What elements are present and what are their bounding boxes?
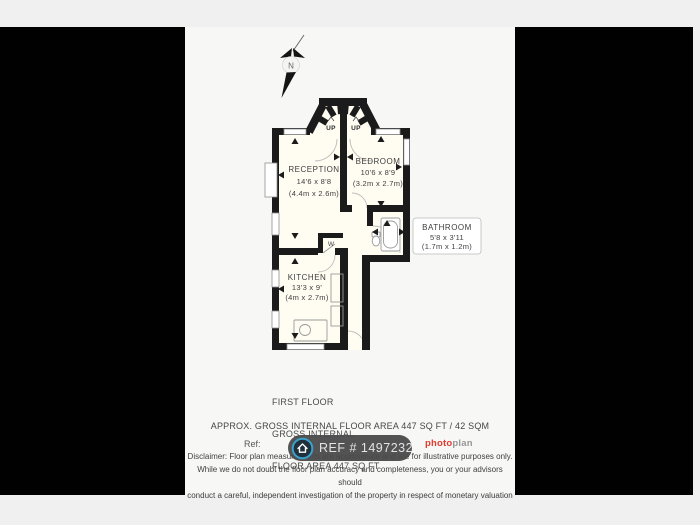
room-dim-imperial: 10'6 x 8'9 (361, 168, 396, 177)
room-dim-imperial: 13'3 x 9' (292, 283, 322, 292)
ref-label: Ref: (244, 439, 261, 449)
room-dim-imperial: 14'6 x 8'8 (297, 177, 332, 186)
approx-area-line: APPROX. GROSS INTERNAL FLOOR AREA 447 SQ… (185, 421, 515, 431)
room-name: KITCHEN (288, 273, 327, 282)
logo-part-plan: plan (452, 438, 472, 449)
screenshot-root: N (0, 0, 700, 525)
house-icon (291, 437, 314, 460)
floorplan-drawing: N (185, 27, 515, 372)
room-name: BEDROOM (356, 157, 401, 166)
bath-icon (381, 218, 400, 251)
floor-summary-line: FIRST FLOOR (272, 397, 380, 408)
room-dim-metric: (4.4m x 2.6m) (289, 189, 339, 198)
disclaimer-line: conduct a careful, independent investiga… (185, 489, 515, 502)
logo-part-photo: photo (425, 438, 452, 449)
left-letterbox (0, 27, 185, 495)
wardrobe-label: W (328, 241, 335, 248)
floorplan-image: N (185, 27, 515, 495)
room-dim-metric: (4m x 2.7m) (285, 293, 329, 302)
compass-icon: N (280, 35, 305, 98)
up-label: UP (326, 125, 336, 132)
room-name: RECEPTION (288, 165, 339, 174)
room-dim-metric: (3.2m x 2.7m) (353, 179, 403, 188)
photoplan-logo: photoplan (425, 438, 473, 449)
room-dim-metric: (1.7m x 1.2m) (422, 242, 472, 251)
right-letterbox (515, 27, 693, 495)
ref-badge-text: REF # 1497232 (319, 441, 413, 455)
up-label: UP (351, 125, 361, 132)
north-label: N (288, 62, 294, 71)
room-name: BATHROOM (422, 223, 472, 232)
ref-badge: REF # 1497232 (288, 435, 412, 461)
disclaimer-line: While we do not doubt the floor plan acc… (185, 463, 515, 489)
room-dim-imperial: 5'8 x 3'11 (430, 233, 464, 242)
bathroom-label: BATHROOM 5'8 x 3'11 (1.7m x 1.2m) (413, 218, 481, 254)
